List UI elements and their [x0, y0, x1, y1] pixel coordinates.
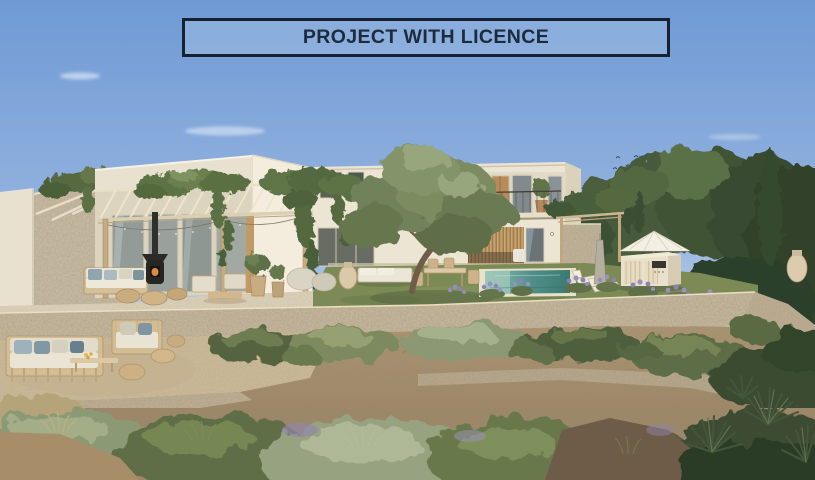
- garden-sofa: [84, 268, 148, 294]
- villa-render-image: [0, 0, 815, 480]
- garden-armchair: [112, 320, 162, 354]
- licence-banner-label: PROJECT WITH LICENCE: [303, 26, 549, 49]
- daybed: [357, 268, 413, 287]
- licence-banner: PROJECT WITH LICENCE: [182, 18, 670, 57]
- listing-photo: PROJECT WITH LICENCE: [0, 0, 815, 480]
